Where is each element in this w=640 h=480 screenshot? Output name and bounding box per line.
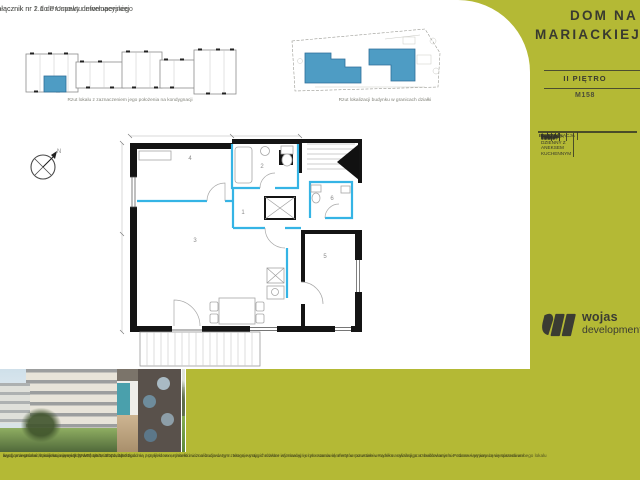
document-page: Załącznik nr 2.1 do Umowy deweloperskiej… [0, 0, 640, 480]
divider [544, 88, 640, 89]
storey-plan [20, 42, 240, 97]
logo-text-line1: wojas [582, 310, 618, 324]
wojas-logo-icon [540, 312, 578, 338]
area-table: 1. KOMUNIKACJA 7.64m² 2. ŁAZIENKA 5.69m²… [538, 131, 637, 133]
room-number-bathroom: 2 [260, 164, 264, 170]
entrance-arrow [337, 144, 359, 180]
sidebar: DOM NA MARIACKIEJ II PIĘTRO M158 1. KOMU… [530, 0, 640, 369]
furniture [139, 146, 350, 324]
photo-building [0, 369, 117, 452]
project-title-line2: MARIACKIEJ [535, 27, 640, 42]
divider [544, 70, 640, 71]
photo3-gym-ball [161, 413, 174, 426]
developer-logo: wojas development [538, 306, 640, 356]
site-plan [285, 25, 485, 97]
storey-plan-caption: Rzut lokalu z zaznaczeniem jego położeni… [20, 98, 240, 103]
floor-label: II PIĘTRO [530, 74, 640, 83]
photo3-gym-ball [143, 395, 156, 408]
room-number-bedroom1: 4 [188, 156, 192, 162]
building-footprint-b [369, 49, 415, 81]
highlighted-unit [44, 76, 66, 92]
site-plan-caption: Rzut lokalizacji budynku w granicach dzi… [285, 98, 485, 103]
room-number-bedroom2: 5 [323, 254, 327, 260]
room-number-living: 3 [193, 238, 197, 244]
room-number-hall: 1 [241, 210, 245, 216]
floor-plan: 1 2 3 4 5 6 [115, 130, 370, 375]
project-title-line1: DOM NA [570, 8, 638, 23]
building-footprint-a [305, 53, 361, 83]
balcony [140, 332, 260, 366]
svg-text:N: N [57, 149, 61, 155]
photo4-tree [21, 408, 61, 442]
unit-number: M158 [530, 92, 640, 99]
north-arrow-icon: N [24, 146, 64, 186]
room-number-wc: 6 [330, 196, 334, 202]
logo-text-line2: development [582, 324, 640, 336]
legal-line-3: lizacja na stronach projektu elewacji (D… [3, 453, 130, 459]
attachment-line-2: Załącznik nr 1 do Prospektu informacyjne… [0, 4, 133, 14]
photo-strip [0, 369, 640, 452]
